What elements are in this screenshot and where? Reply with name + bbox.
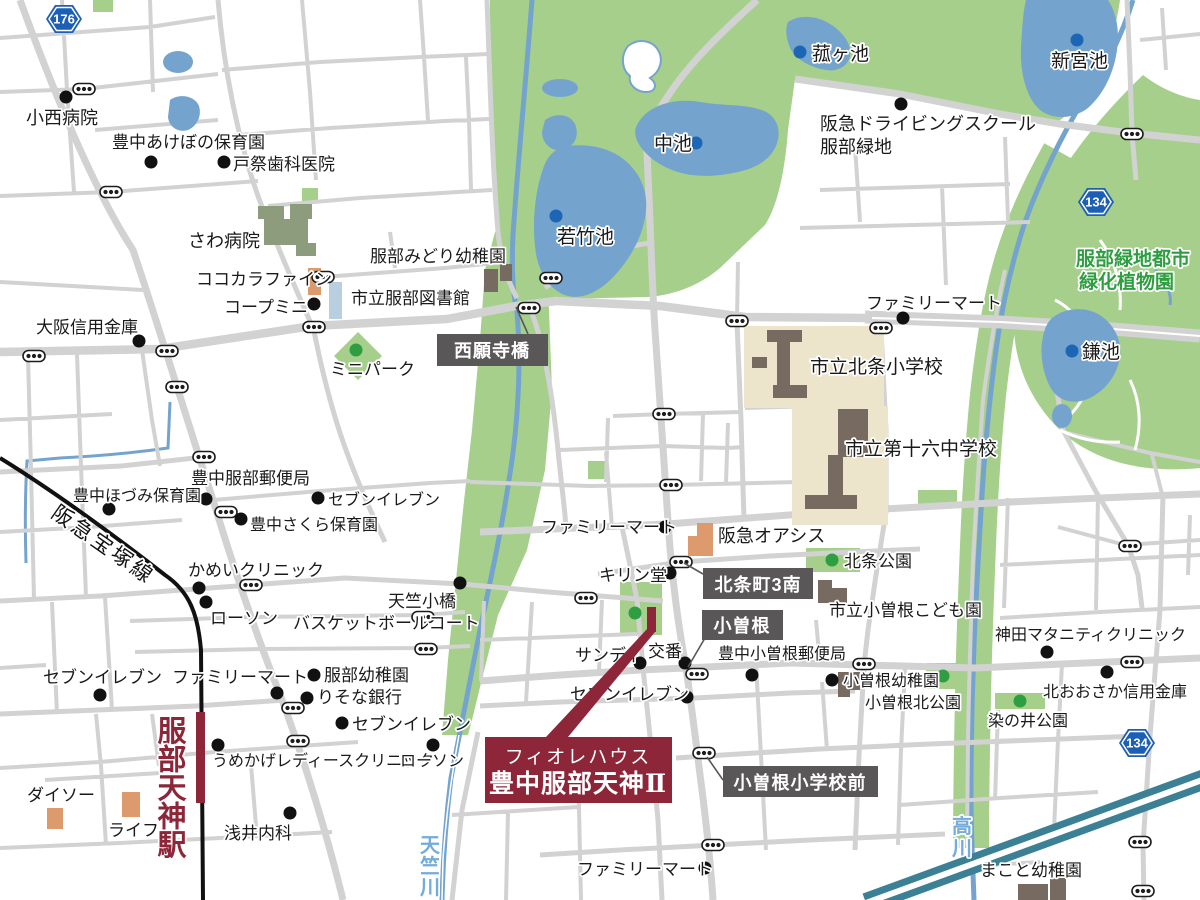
map-label: りそな銀行 — [317, 688, 402, 707]
poi-dot — [145, 156, 158, 169]
map-label: 服部緑地 — [820, 137, 892, 157]
route-badge: 176 — [46, 5, 82, 33]
callout-label: 小曽根小学校前 — [734, 772, 867, 793]
hankyu-oasis-building — [688, 523, 713, 556]
map-label: かめいクリニック — [188, 561, 324, 580]
pond — [542, 79, 578, 97]
traffic-signal-icon — [415, 644, 437, 655]
route-badge-number: 134 — [1126, 736, 1148, 751]
map-label: セブンイレブン — [328, 490, 440, 509]
poi-dot — [1041, 646, 1054, 659]
pond-dot — [1071, 34, 1084, 47]
map-label: 豊中あけぼの保育園 — [112, 133, 265, 152]
pond — [1052, 404, 1072, 428]
ozone-kodomoen-building — [818, 580, 847, 603]
poi-dot — [200, 596, 213, 609]
traffic-signal-icon — [870, 323, 892, 334]
map-label: 市立北条小学校 — [810, 356, 943, 378]
traffic-signal-icon — [73, 84, 95, 95]
pond-dot — [550, 210, 563, 223]
map-label: 神 — [157, 801, 186, 834]
poi-dot — [212, 739, 225, 752]
map-label: ファミリーマート — [541, 518, 677, 537]
map-label: ココカラファイン — [196, 270, 332, 289]
map-label: 戸祭歯科医院 — [233, 155, 335, 174]
poi-dot — [200, 493, 213, 506]
map-label: 服部幼稚園 — [324, 666, 409, 685]
traffic-signal-icon — [518, 303, 540, 314]
map-label: ローソン — [210, 609, 278, 628]
traffic-signal-icon — [282, 703, 304, 714]
poi-dot — [826, 674, 839, 687]
traffic-signal-icon — [686, 669, 708, 680]
traffic-signal-icon — [156, 346, 178, 357]
map-label: さわ病院 — [188, 231, 260, 251]
map-label: 豊中ほづみ保育園 — [73, 487, 201, 505]
traffic-signal-icon — [726, 316, 748, 327]
map-label: 服部緑地都市 — [1076, 247, 1190, 270]
map-label: 大阪信用金庫 — [36, 318, 138, 337]
route-badge-number: 134 — [1085, 195, 1107, 210]
map-label: 北おおさか信用金庫 — [1043, 683, 1187, 701]
map-label: 若竹池 — [557, 226, 614, 248]
site-marker — [647, 607, 656, 632]
traffic-signal-icon — [653, 409, 675, 420]
pond — [163, 51, 193, 73]
poi-dot — [427, 739, 440, 752]
traffic-signal-icon — [287, 736, 309, 747]
poi-dot — [284, 807, 297, 820]
sawa-hospital-buildings — [258, 204, 316, 256]
map-label: 菰ヶ池 — [812, 43, 869, 65]
map-label: 緑化植物園 — [1079, 270, 1174, 293]
poi-dot — [312, 492, 325, 505]
map-label: 川 — [951, 838, 972, 860]
poi-dot — [454, 577, 467, 590]
map-label: 鎌池 — [1082, 341, 1120, 363]
map-label: 阪急宝塚線 — [47, 500, 159, 588]
map-label: セブンイレブン — [43, 667, 162, 687]
map-label: 市立小曽根こども園 — [829, 601, 982, 620]
map-label: 豊中小曽根郵便局 — [718, 645, 846, 663]
poi-dot — [301, 692, 314, 705]
map-label: 北条公園 — [844, 552, 912, 571]
map-label: 市立服部図書館 — [351, 289, 470, 308]
poi-dot — [193, 582, 206, 595]
map-label: 中池 — [654, 133, 692, 155]
map-label: 服 — [157, 716, 187, 748]
map-label: コープミニ — [224, 298, 308, 317]
small-green — [93, 0, 113, 12]
daiso-building — [47, 808, 63, 829]
map-label: バスケットボールコート — [293, 614, 480, 633]
poi-dot — [271, 687, 284, 700]
map-label: ライフ — [108, 821, 159, 840]
traffic-signal-icon — [702, 840, 724, 851]
map-label: 天 — [420, 835, 441, 857]
pond — [542, 115, 577, 150]
traffic-signal-icon — [1132, 886, 1154, 897]
map-label: 新宮池 — [1051, 50, 1108, 72]
map-label: 小曽根北公園 — [865, 694, 961, 712]
pond-dot — [1066, 345, 1079, 358]
park-dot — [629, 607, 642, 620]
route-badge-number: 176 — [53, 12, 75, 27]
map-label: 神田マタニティクリニック — [995, 626, 1186, 644]
traffic-signal-icon — [215, 507, 237, 518]
map-label: 豊中さくら保育園 — [250, 516, 378, 534]
poi-dot — [1101, 666, 1114, 679]
map-label: 竺 — [420, 854, 440, 878]
poi-dot — [94, 689, 107, 702]
traffic-signal-icon — [1119, 541, 1141, 552]
traffic-signal-icon — [693, 748, 715, 759]
traffic-signal-icon — [1121, 657, 1143, 668]
life-building — [122, 792, 140, 817]
map-label: 市立第十六中学校 — [845, 438, 997, 460]
traffic-signal-icon — [240, 580, 262, 591]
park-dot — [826, 554, 839, 567]
map-canvas: 小西病院豊中あけぼの保育園戸祭歯科医院さわ病院ココカラファインコープミニ市立服部… — [0, 0, 1200, 900]
poi-dot — [897, 312, 910, 325]
map-screenshot: 小西病院豊中あけぼの保育園戸祭歯科医院さわ病院ココカラファインコープミニ市立服部… — [0, 0, 1200, 900]
traffic-signal-icon — [100, 187, 122, 198]
traffic-signal-icon — [1129, 837, 1151, 848]
callout-label: 西願寺橋 — [454, 340, 530, 361]
map-label: 部 — [157, 743, 186, 777]
traffic-signal-icon — [575, 593, 597, 604]
map-label: 服部みどり幼稚園 — [370, 247, 506, 266]
map-label: まこと幼稚園 — [980, 861, 1082, 880]
traffic-signal-icon — [166, 382, 188, 393]
map-label: 阪急オアシス — [718, 526, 825, 546]
map-label: 阪急ドライビングスクール — [820, 114, 1036, 134]
map-label: 天 — [157, 773, 186, 805]
hattori-tenjin-station-bar — [196, 712, 205, 803]
poi-dot — [308, 298, 321, 311]
traffic-signal-icon — [23, 351, 45, 362]
map-label: 浅井内科 — [224, 824, 292, 843]
map-label: ローソン — [400, 753, 464, 770]
poi-dot — [895, 98, 908, 111]
poi-dot — [235, 513, 248, 526]
map-label: ミニパーク — [330, 360, 415, 379]
map-label: 小曽根幼稚園 — [843, 672, 939, 690]
map-label: ファミリーマート — [172, 668, 308, 687]
pond — [168, 96, 200, 131]
callout-label: 北条町3南 — [714, 574, 801, 595]
poi-dot — [218, 156, 231, 169]
poi-dot — [60, 91, 73, 104]
site-title-line2: 豊中服部天神Ⅱ — [489, 769, 667, 798]
traffic-signal-icon — [1121, 129, 1143, 140]
map-label: 高 — [952, 814, 972, 838]
poi-dot — [336, 717, 349, 730]
small-green — [588, 461, 606, 479]
map-label: キリン堂 — [599, 566, 667, 585]
map-label: 川 — [419, 877, 440, 899]
map-label: セブンイレブン — [352, 714, 471, 734]
callout-hojocho3-minami: 北条町3南 — [684, 563, 813, 599]
map-label: 天竺小橋 — [388, 592, 456, 611]
poi-dot — [746, 669, 759, 682]
site-title-line1: フィオレハウス — [505, 747, 652, 768]
callout-label: 小曽根 — [714, 615, 771, 636]
map-label: 交番 — [648, 642, 682, 661]
traffic-signal-icon — [540, 273, 562, 284]
map-label: ダイソー — [27, 786, 95, 805]
traffic-signal-icon — [660, 480, 682, 491]
map-label: 駅 — [157, 830, 186, 862]
map-label: ファミリーマート — [866, 294, 1002, 313]
poi-dot — [308, 669, 321, 682]
callout-ozone-shogakko-mae: 小曽根小学校前 — [707, 757, 878, 797]
map-label: 染の井公園 — [988, 712, 1068, 730]
traffic-signal-icon — [303, 322, 325, 333]
park-dot — [350, 344, 363, 357]
pond-dot — [794, 46, 807, 59]
park-dot — [1014, 695, 1027, 708]
map-label: 小西病院 — [26, 108, 98, 128]
map-label: ファミリーマート — [577, 860, 713, 879]
makoto-kindergarten-buildings — [1018, 878, 1066, 900]
traffic-signal-icon — [853, 659, 875, 670]
traffic-signal-icon — [193, 452, 215, 463]
map-label: 豊中服部郵便局 — [191, 469, 310, 488]
